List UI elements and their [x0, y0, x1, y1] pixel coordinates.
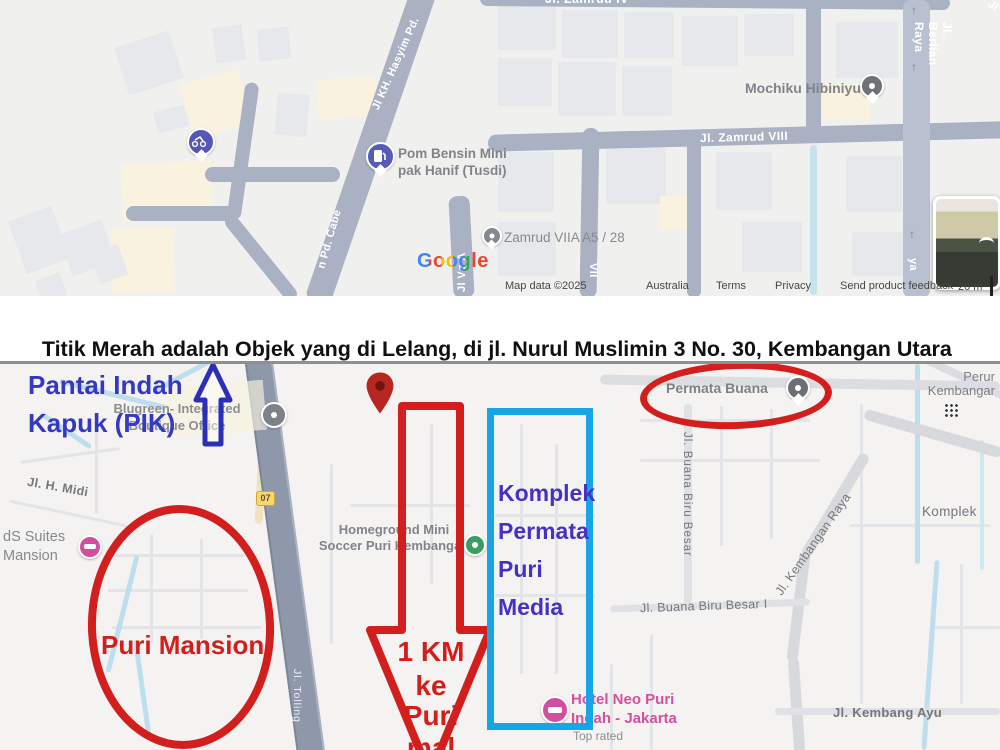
street-label-jl-corner: Jl — [985, 0, 1000, 14]
annotation-arrow-line4: mal — [386, 732, 476, 750]
annotation-arrow-line3: Puri — [386, 700, 476, 732]
attribution-map-data: Map data ©2025 — [505, 280, 587, 292]
attribution-region[interactable]: Australia — [646, 280, 689, 292]
poi-pin-icon[interactable] — [482, 226, 502, 246]
poi-label-zamrud-viia[interactable]: Zamrud VIIA A5 / 28 — [504, 229, 625, 246]
annotation-puri-mansion: Puri Mansion — [101, 630, 264, 661]
street-label-h-midi: Jl. H. Midi — [26, 475, 89, 499]
up-arrow-icon — [192, 364, 234, 448]
street-label-vii: VII — [587, 263, 599, 278]
poi-label-mochiku[interactable]: Mochiku Hibiniyu — [745, 80, 861, 97]
annotation-komplek: Komplek Permata Puri Media — [498, 474, 595, 626]
title-seg-rest: Nurul Muslimin 3 No. 30, Kembangan Utara — [506, 337, 952, 361]
street-label-kembangan-raya: Jl. Kembangan Raya — [773, 490, 854, 598]
one-way-arrow-icon: ↑ — [911, 3, 917, 17]
poi-label-hotel-neo-sub: Top rated — [573, 729, 623, 743]
annotation-ellipse-puri-mansion — [84, 502, 278, 750]
scale-bar — [990, 276, 993, 296]
street-label-zamrud-viii: Jl. Zamrud VIII — [700, 129, 788, 145]
poi-pin-icon[interactable] — [261, 402, 287, 428]
annotation-arrow-line2: ke — [386, 670, 476, 702]
title-seg-merah: Merah — [86, 337, 161, 361]
title-seg-jl: jl. — [488, 337, 506, 361]
street-label-toll: Jl. Tolling — [291, 669, 303, 723]
attribution-feedback-link[interactable]: Send product feedback — [840, 280, 953, 292]
one-way-arrow-icon: ↑ — [909, 227, 915, 241]
hotel-pin-icon[interactable] — [78, 535, 102, 559]
poi-label-pom-bensin[interactable]: Pom Bensin Mini pak Hanif (Tusdi) — [398, 145, 507, 179]
annotation-ellipse-permata-buana — [639, 364, 833, 432]
attribution-terms-link[interactable]: Terms — [716, 280, 746, 292]
street-label-berlian-raya: Jl. Berlian Raya — [912, 22, 954, 68]
title-band: Titik Merah adalah Objek yang di Lelang,… — [0, 296, 1000, 362]
annotation-pik: Pantai Indah Kapuk (PIK) — [28, 366, 183, 442]
scale-label: 20 m — [958, 281, 982, 293]
title-seg-titik: Titik — [42, 337, 86, 361]
street-label-komplek-right: Komplek — [922, 504, 977, 519]
fuel-pin-icon[interactable] — [366, 142, 395, 171]
apps-grid-icon — [944, 403, 958, 417]
annotation-arrow-line1: 1 KM — [386, 636, 476, 668]
scooter-pin-icon[interactable] — [187, 128, 215, 156]
top-map[interactable]: ↑ ↑ ↑ Jl KH. Hasyim Pd. n Pd. Cabe Jl. Z… — [0, 0, 1000, 296]
street-label-kembang-ayu: Jl. Kembang Ayu — [833, 705, 942, 720]
google-logo[interactable]: Google — [417, 250, 489, 273]
title-seg-mid: yang di Lelang, di — [295, 337, 489, 361]
poi-label-perumahan[interactable]: Perur Kembangar — [903, 370, 995, 398]
screenshot-root: ↑ ↑ ↑ Jl KH. Hasyim Pd. n Pd. Cabe Jl. Z… — [0, 0, 1000, 750]
poi-pin-icon[interactable] — [860, 74, 884, 98]
bottom-map[interactable]: Jl. H. Midi Jl. Buana Biru Besar Jl. Kem… — [0, 364, 1000, 750]
street-label-zamrud-top: Jl. Zamrud IV — [545, 0, 629, 6]
title-seg-adalah-objek: adalah Objek — [161, 337, 295, 361]
street-label-buana-biru-i: Jl. Buana Biru Besar I — [640, 597, 768, 615]
street-label-buana-biru: Jl. Buana Biru Besar — [681, 432, 693, 557]
poi-label-suites[interactable]: dS Suites Mansion — [3, 528, 65, 566]
rotate-arrow-icon — [979, 237, 994, 250]
attribution-privacy-link[interactable]: Privacy — [775, 280, 811, 292]
street-label-ya: ya — [907, 258, 919, 271]
route-shield: 07 — [256, 491, 275, 506]
